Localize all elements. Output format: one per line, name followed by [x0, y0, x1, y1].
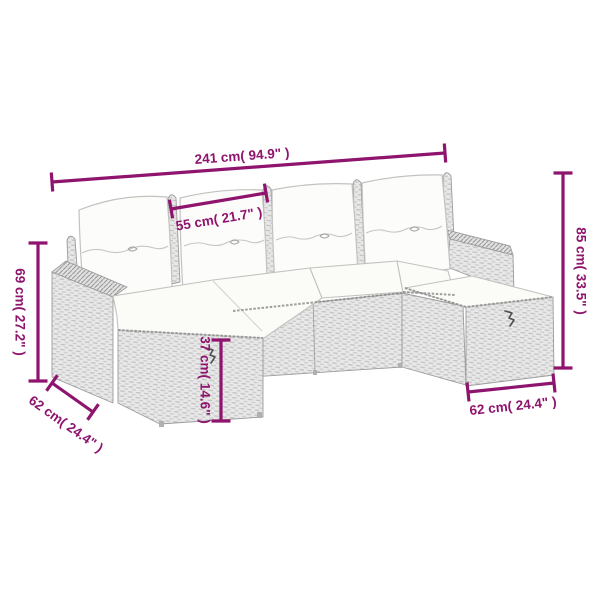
dimension-label-total-width: 241 cm( 94.9" ): [194, 145, 290, 167]
dimension-label-seat-height: 37 cm( 14.6" ): [198, 336, 213, 423]
right-ottoman-face: [466, 297, 554, 386]
dimension-line-back-height: [554, 173, 573, 368]
left-armrest-panel: [52, 261, 127, 403]
seat-cushion-middle: [310, 261, 403, 298]
dimension-label-depth-right: 62 cm( 24.4" ): [469, 394, 558, 418]
left-ottoman-face: [118, 330, 263, 424]
right-corner-seat-face: [402, 293, 466, 385]
back-pillow: [362, 175, 450, 277]
back-post: [67, 236, 77, 266]
dimension-side-height: 69 cm( 27.2" ): [13, 243, 48, 381]
dimension-label-side-height: 69 cm( 27.2" ): [13, 268, 28, 355]
dimension-label-back-height: 85 cm( 33.5" ): [574, 227, 589, 314]
dimension-back-height: 85 cm( 33.5" ): [554, 173, 589, 368]
dimension-label-depth-left: 62 cm( 24.4" ): [26, 393, 106, 456]
sofa-dimension-diagram: 241 cm( 94.9" )55 cm( 21.7" )69 cm( 27.2…: [0, 0, 600, 600]
dimension-line-side-height: [29, 243, 48, 381]
sofa-illustration: [52, 173, 554, 427]
diagram-canvas: 241 cm( 94.9" )55 cm( 21.7" )69 cm( 27.2…: [0, 0, 600, 600]
